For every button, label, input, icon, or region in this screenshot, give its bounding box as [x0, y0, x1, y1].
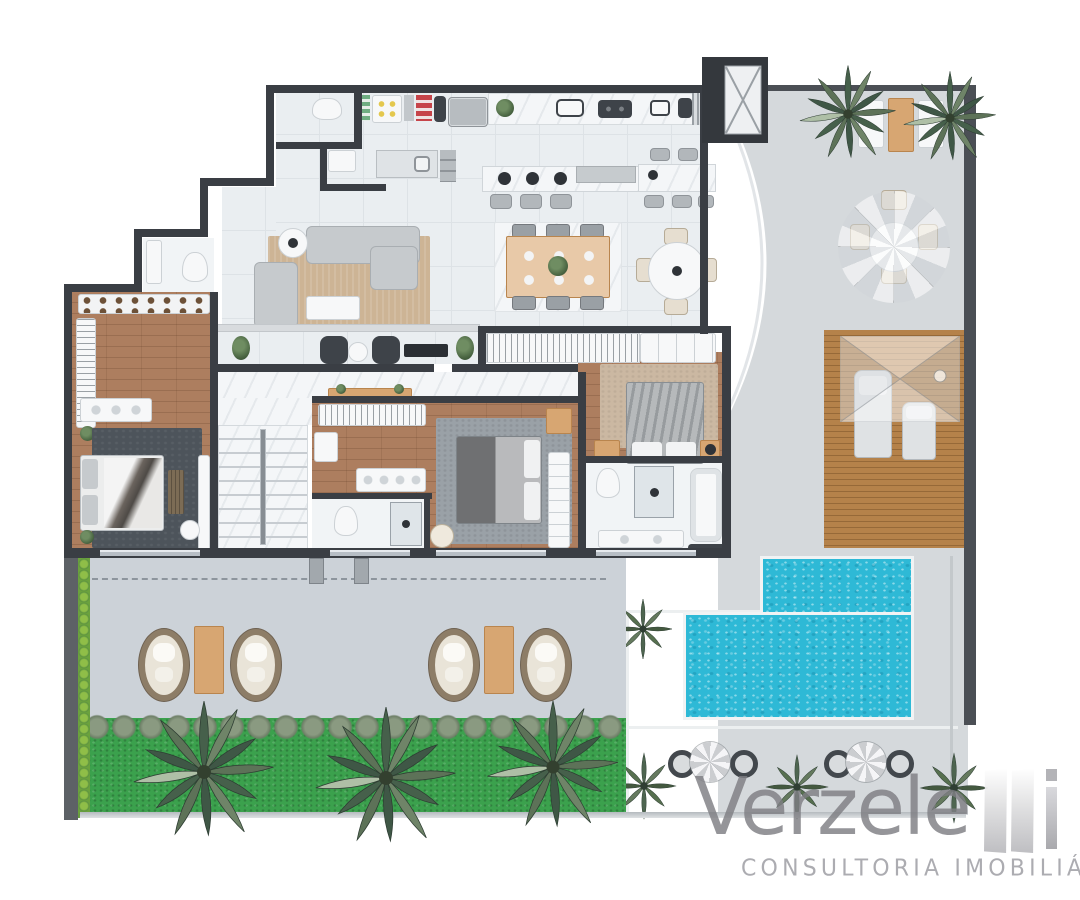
wall-top	[266, 85, 712, 93]
wall	[206, 178, 274, 186]
table-decor	[672, 266, 682, 276]
window	[330, 550, 410, 556]
garden-wall	[64, 558, 78, 820]
pool-upper	[760, 556, 914, 618]
brand-tagline: CONSULTORIA IMOBILIÁRIA	[741, 855, 1080, 882]
toilet	[182, 252, 208, 282]
counter-plant	[496, 99, 514, 117]
wall	[64, 284, 142, 292]
wall-left	[64, 284, 72, 558]
wall	[134, 229, 142, 291]
wardrobe-shelves	[548, 452, 570, 548]
wall	[354, 91, 362, 149]
coffee-machine	[526, 172, 539, 185]
garden-table	[194, 626, 224, 694]
lounge-chair	[520, 628, 572, 702]
wall	[452, 364, 578, 372]
lounge-chair	[230, 628, 282, 702]
wall	[210, 292, 218, 550]
centerpiece	[548, 256, 568, 276]
toilet	[312, 98, 342, 120]
hedge-strip	[78, 558, 90, 818]
nightstand	[546, 408, 572, 434]
bar-stool	[672, 195, 692, 208]
wardrobe	[318, 404, 426, 426]
patio-umbrella	[838, 191, 950, 303]
ring-chair	[886, 750, 914, 778]
armchair	[372, 336, 400, 364]
sideboard-plant	[336, 384, 346, 394]
palm-tree	[900, 68, 1000, 168]
wall	[276, 142, 360, 149]
wall	[266, 85, 274, 185]
stair-landing	[216, 398, 312, 425]
vanity-sinks	[608, 534, 674, 545]
dining-chair	[512, 296, 536, 310]
coffee-table	[306, 296, 360, 320]
wall	[312, 493, 432, 499]
bar-stool	[650, 148, 670, 161]
counter-board	[678, 98, 692, 118]
bar-stool	[644, 195, 664, 208]
closet-seat	[314, 432, 338, 462]
armchair	[320, 336, 348, 364]
logo-letter-t-slab	[1011, 769, 1034, 853]
pool-main	[683, 612, 914, 720]
balcony-low-wall	[216, 324, 480, 332]
vanity-bowls	[360, 473, 422, 487]
wall	[312, 396, 578, 403]
potted-plant	[80, 530, 94, 544]
cooktop-burners	[602, 104, 628, 114]
wall-right-strip	[722, 326, 731, 554]
potted-plant	[456, 336, 474, 360]
pillar	[354, 558, 369, 584]
lounge-chair	[138, 628, 190, 702]
deck-border	[626, 726, 958, 729]
coffee-machine	[498, 172, 511, 185]
tv-console	[404, 344, 448, 357]
bed-pillows	[82, 459, 98, 489]
dining-chair	[546, 296, 570, 310]
prep-sink	[650, 100, 670, 116]
toilet	[334, 506, 358, 536]
shower-drain	[402, 520, 410, 528]
basket	[430, 524, 454, 548]
wall	[582, 456, 728, 463]
bath1-vanity	[146, 240, 162, 284]
elevator-icon	[724, 65, 762, 135]
wall	[424, 493, 430, 550]
window	[100, 550, 200, 556]
coffee-machine	[554, 172, 567, 185]
ring-chair	[730, 750, 758, 778]
floor-plan: Verzele i CONSULTORIA IMOBILIÁRIA	[0, 0, 1080, 900]
logo-letter-i-bar	[1046, 787, 1057, 849]
appliance-tower	[440, 150, 456, 182]
pillar	[309, 558, 324, 584]
desk-chair	[180, 520, 200, 540]
bottle-rack	[416, 95, 432, 121]
wall	[216, 364, 434, 372]
sofa-chaise	[370, 246, 418, 290]
kitchen-sink	[556, 99, 584, 117]
shoe-shelf	[78, 294, 210, 314]
stair-railing	[261, 430, 265, 544]
floor-lamp	[288, 238, 298, 248]
bed-duvet	[104, 458, 162, 528]
palm-tree	[310, 702, 462, 854]
deck-umbrella	[840, 336, 960, 422]
palm-tree	[482, 696, 624, 838]
wall	[134, 229, 208, 237]
storage-cabinet	[328, 150, 356, 172]
round-table-chair	[664, 298, 688, 315]
bar-stool	[550, 194, 572, 209]
right-boundary-wall	[964, 85, 976, 725]
bar-stool	[678, 148, 698, 161]
pool-umbrella	[690, 742, 730, 782]
speaker	[705, 444, 716, 455]
window	[596, 550, 696, 556]
palm-tree	[796, 62, 900, 166]
shower-drain	[650, 488, 659, 497]
counter-dark	[434, 96, 446, 122]
refrigerator	[448, 97, 488, 127]
bar-stool	[520, 194, 542, 209]
window	[436, 550, 546, 556]
sofa-two-seat	[254, 262, 298, 328]
desk	[198, 455, 210, 551]
bathtub	[690, 468, 722, 542]
closet-wall	[478, 326, 724, 333]
wall	[320, 142, 327, 189]
bar-cabinet	[576, 166, 636, 183]
laundry-sink	[414, 156, 430, 172]
wall	[320, 184, 386, 191]
balcony-table	[348, 342, 368, 362]
lounge-chair	[428, 628, 480, 702]
bar-sink	[648, 170, 658, 180]
kitchen-rack	[404, 95, 414, 121]
vanity-bowls	[86, 403, 146, 417]
projection-dashed-line	[92, 578, 606, 580]
toilet	[596, 468, 620, 498]
bed-bench	[168, 470, 184, 514]
bar-stool	[490, 194, 512, 209]
logo-letter-i-dot	[1046, 769, 1057, 781]
sideboard-plant	[394, 384, 404, 394]
palm-tree	[128, 696, 280, 848]
potted-plant	[232, 336, 250, 360]
garden-table	[484, 626, 514, 694]
pool-umbrella	[846, 742, 886, 782]
master-closet-hanging	[486, 333, 640, 363]
stove-burners	[376, 99, 398, 119]
dining-chair	[580, 296, 604, 310]
master-closet-shelves	[640, 333, 716, 363]
bed-pillows	[524, 440, 540, 478]
